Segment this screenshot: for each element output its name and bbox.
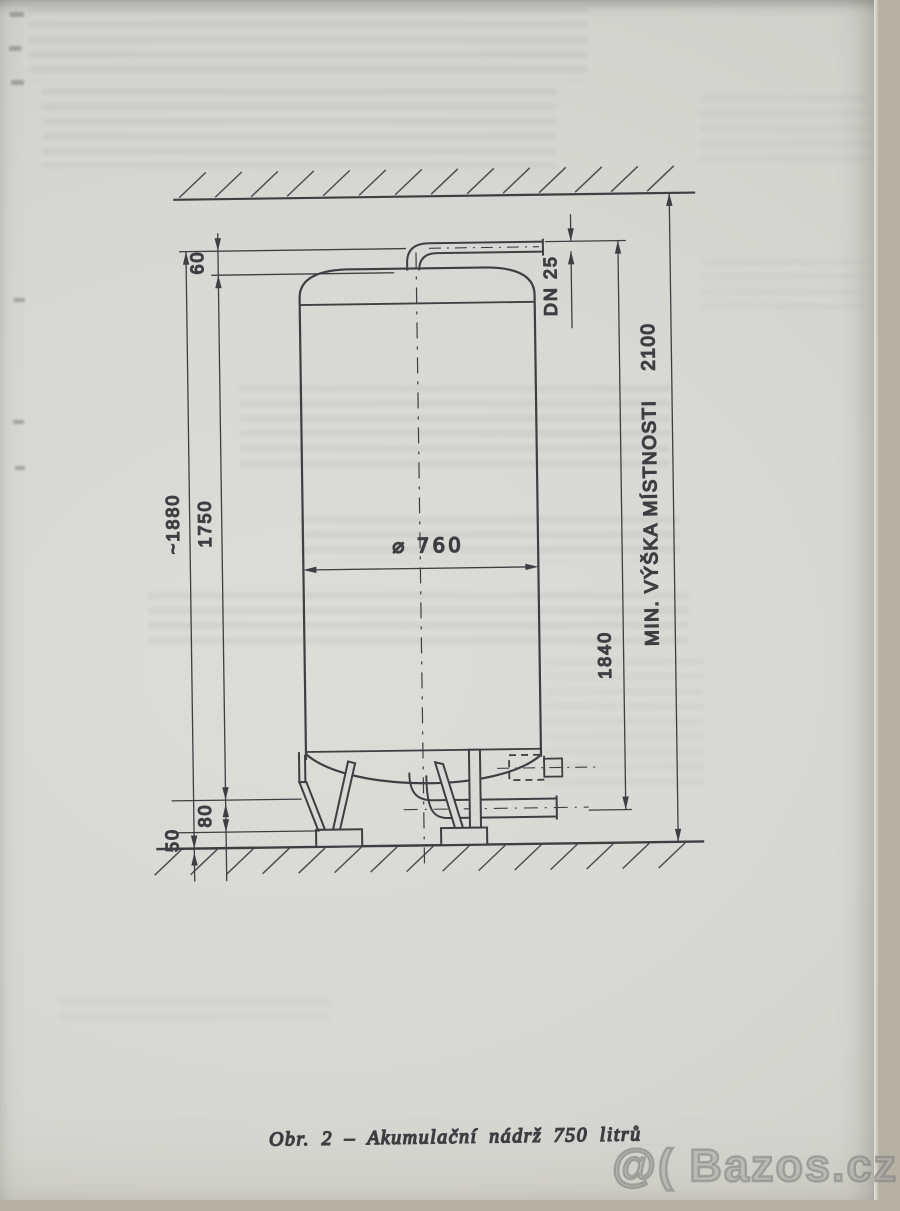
floor-line <box>156 841 704 849</box>
left-leg-strut <box>332 761 356 829</box>
left-leg-bracket <box>299 752 305 783</box>
right-leg-post <box>469 750 481 828</box>
figure-caption: Obr. 2 – Akumulační nádrž 750 litrů <box>269 1123 642 1150</box>
label-bottom-offset: 80 <box>195 803 215 827</box>
drain-fitting-centerline <box>497 767 595 768</box>
label-pipe-height: 1840 <box>594 631 615 679</box>
left-leg-strut <box>299 782 325 830</box>
tank-outline <box>299 267 541 785</box>
label-foot-height: 50 <box>162 828 182 852</box>
label-top-offset: 60 <box>187 250 207 274</box>
top-pipe-centerline <box>429 247 539 249</box>
label-pipe-nominal: DN 25 <box>540 255 561 316</box>
tank-legs <box>299 750 487 848</box>
drain-fitting <box>497 754 595 780</box>
tank-centerline <box>416 252 425 866</box>
top-pipe <box>407 239 543 271</box>
label-tank-height: 1750 <box>194 499 215 547</box>
label-diameter: ⌀ 760 <box>392 533 464 558</box>
technical-drawing-container: ~1880 1750 60 80 50 1840 DN 25 MIN. VÝŠK… <box>0 0 900 1206</box>
min-room-height-text: MIN. VÝŠKA MÍSTNOSTI <box>638 399 663 646</box>
label-overall-height: ~1880 <box>162 493 183 554</box>
min-room-height-value: 2100 <box>638 322 660 371</box>
tank-left-wall <box>300 305 306 760</box>
left-foot-pad <box>316 829 362 847</box>
right-foot-pad <box>441 828 487 846</box>
label-min-room-height: MIN. VÝŠKA MÍSTNOSTI 2100 <box>637 322 664 646</box>
tank-right-wall <box>535 302 541 757</box>
dimension-lines-left <box>164 231 415 882</box>
dimension-arrows-right <box>567 193 681 843</box>
technical-drawing: ~1880 1750 60 80 50 1840 DN 25 MIN. VÝŠK… <box>0 0 900 1206</box>
watermark: @( Bazos.cz <box>612 1140 898 1192</box>
